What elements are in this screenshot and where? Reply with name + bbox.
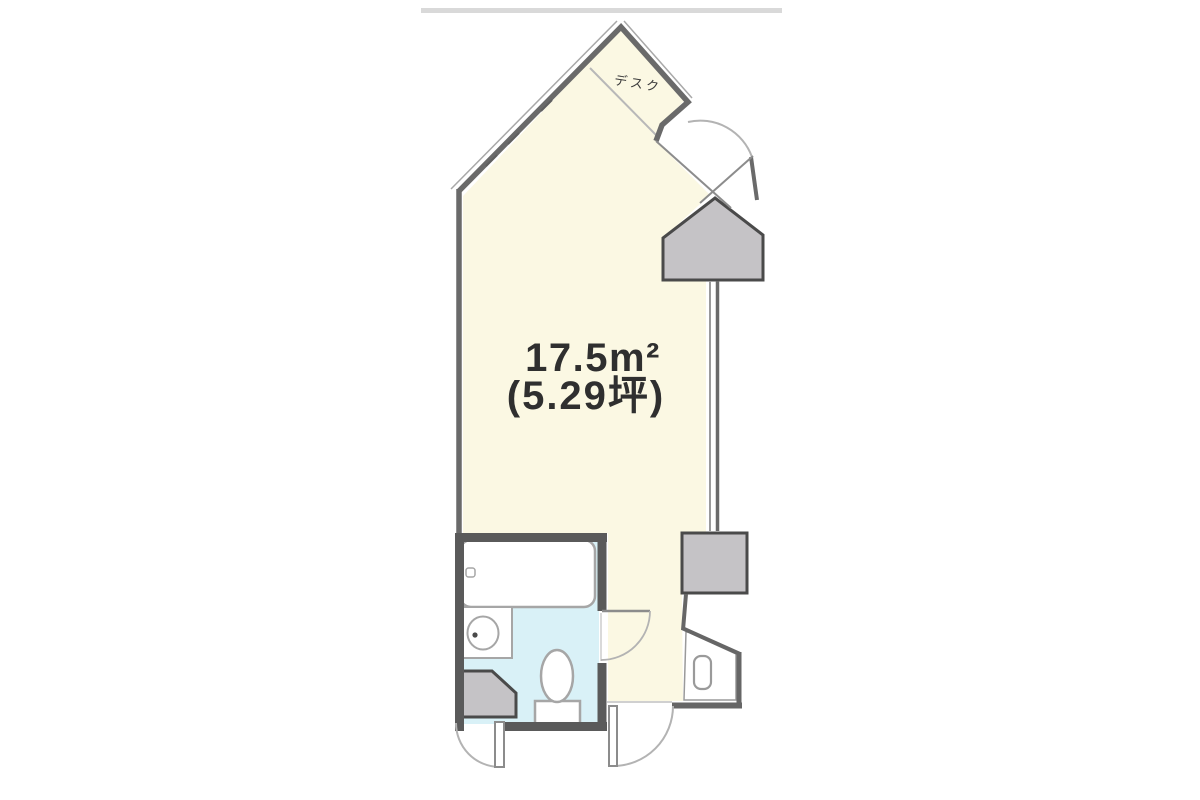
wall-below-pillar (683, 594, 686, 630)
floor-plan-image: 17.5m² (5.29坪) デスク (0, 0, 1200, 800)
entry-door-swing-arc (688, 121, 752, 157)
scan-edge-line (421, 8, 782, 13)
bathtub-drain (466, 568, 475, 577)
toilet-tank (535, 701, 580, 724)
pillar-mid-right (682, 533, 747, 593)
bathtub-body (460, 540, 595, 607)
entrance-door-swing-arc (613, 706, 673, 766)
bathtub-icon (460, 540, 595, 607)
sink-bowl (468, 617, 499, 650)
sink-faucet (472, 632, 477, 637)
room-tsubo-label: (5.29坪) (507, 374, 666, 418)
entry-door-leaf (700, 156, 753, 203)
floor-plan-svg: 17.5m² (5.29坪) デスク (0, 0, 1200, 800)
pipe-space-door-leaf (495, 722, 504, 767)
wall-entry-jamb (751, 157, 757, 200)
entrance-door-leaf (609, 706, 617, 766)
sink-icon (459, 607, 512, 658)
meter-box-icon (694, 656, 711, 689)
toilet-bowl (541, 650, 573, 702)
main-entrance-door (609, 706, 673, 766)
